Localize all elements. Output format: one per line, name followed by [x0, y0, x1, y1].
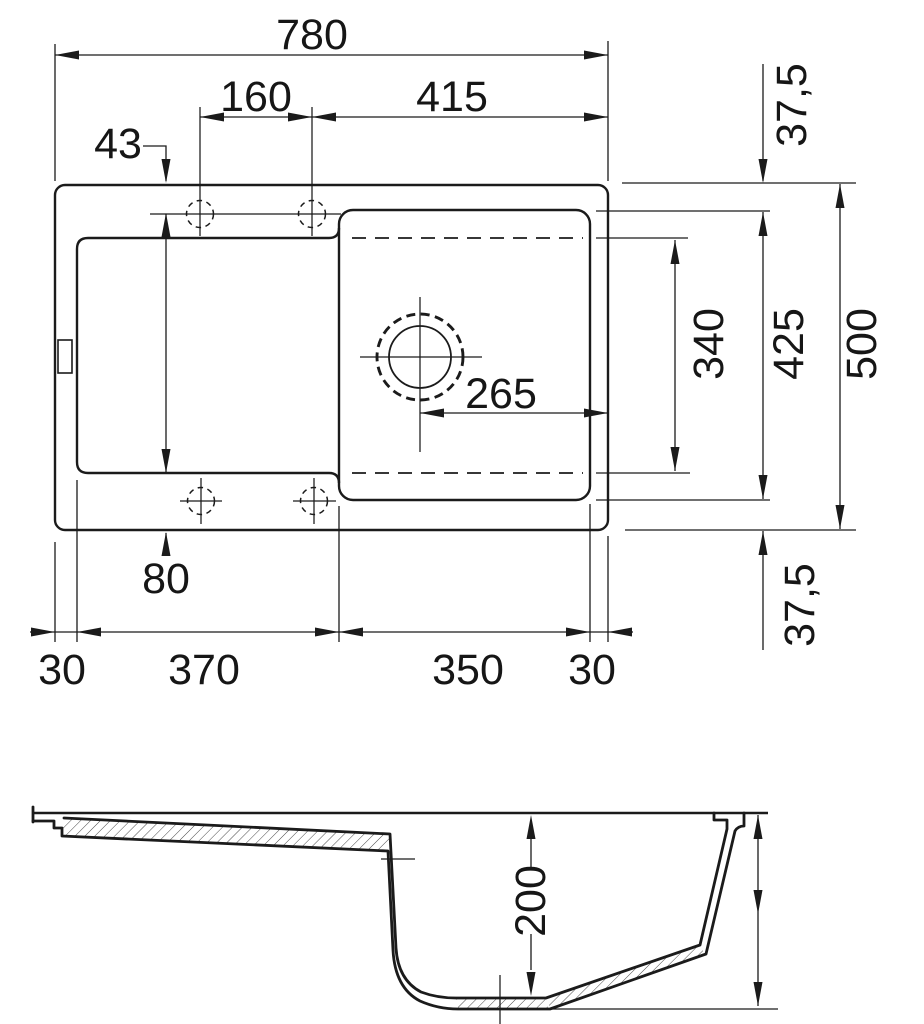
dim-label-rim-bottom: 37,5	[776, 563, 824, 647]
section-view-dimensions: 200	[507, 815, 778, 1009]
section-view	[33, 807, 768, 1024]
dim-label-cutout-length: 425	[765, 308, 813, 380]
dim-label-overall-width: 780	[276, 11, 348, 59]
dim-label-drainboard-width: 370	[168, 646, 240, 694]
floor-hatch	[456, 999, 548, 1008]
dim-label-tap-hole-offset: 43	[94, 120, 142, 168]
dim-label-overall-depth: 500	[838, 308, 886, 380]
drain	[360, 297, 482, 452]
dim-label-bowl-width: 350	[432, 646, 504, 694]
dim-label-tap-hole-spacing: 160	[220, 73, 292, 121]
overflow-marker	[58, 340, 72, 373]
top-view	[55, 107, 608, 530]
top-view-dimensions: 780 160 415 43 265 80 30 370 350 30 37,5…	[30, 11, 886, 694]
dim-label-edge-to-bowl: 415	[416, 73, 488, 121]
dim-label-right-margin: 30	[568, 646, 616, 694]
dim-label-drainboard-to-edge: 80	[142, 555, 190, 603]
drainboard-slab-hatch	[62, 819, 390, 850]
sink-technical-drawing: 780 160 415 43 265 80 30 370 350 30 37,5…	[0, 0, 924, 1024]
sloped-floor-hatch	[547, 946, 705, 1008]
dim-label-left-margin: 30	[38, 646, 86, 694]
dim-label-rim-top: 37,5	[768, 63, 816, 147]
drainboard-outline	[77, 228, 339, 483]
drawing-canvas: 780 160 415 43 265 80 30 370 350 30 37,5…	[0, 0, 924, 1024]
dim-label-drain-to-edge: 265	[465, 370, 537, 418]
tap-holes	[150, 107, 341, 524]
dim-label-bowl-depth: 200	[507, 865, 555, 937]
dim-label-bowl-length: 340	[685, 308, 733, 380]
